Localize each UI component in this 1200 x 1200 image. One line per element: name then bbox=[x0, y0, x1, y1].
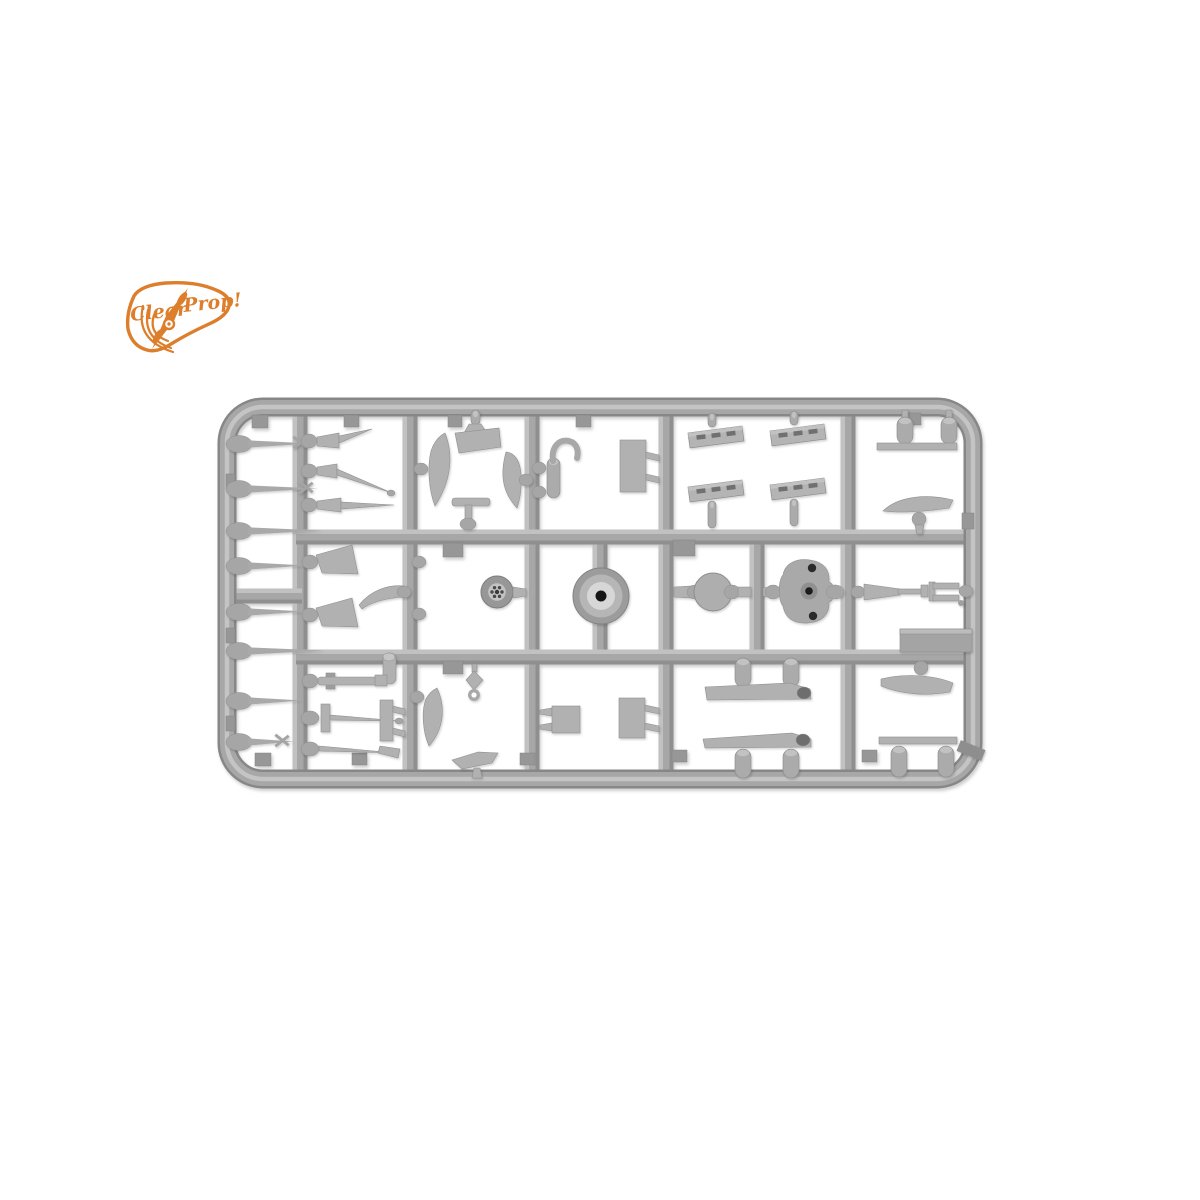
sprue-gate bbox=[397, 586, 411, 598]
gate-stub bbox=[412, 556, 426, 568]
elbow-cap bbox=[383, 653, 395, 661]
rod-tip bbox=[395, 718, 403, 724]
gear-cylinder bbox=[735, 658, 751, 687]
sprue-gate bbox=[914, 661, 928, 675]
gate-stub bbox=[412, 608, 426, 620]
square-plate bbox=[552, 706, 580, 733]
flap-stem bbox=[708, 413, 716, 427]
ejector-tab bbox=[448, 415, 462, 427]
ejector-tab bbox=[520, 753, 535, 765]
ejector-tab bbox=[352, 753, 367, 765]
engine-hole bbox=[808, 564, 816, 572]
sprue-gate bbox=[302, 555, 318, 569]
fuel-cylinder bbox=[941, 417, 957, 444]
sprue-gate bbox=[959, 585, 973, 597]
gear-cylinder bbox=[783, 658, 799, 687]
ejector-tab bbox=[443, 543, 463, 557]
sprue-gate bbox=[851, 586, 865, 598]
hook-cylinder bbox=[547, 458, 560, 498]
sprue-gate bbox=[302, 674, 318, 688]
fuel-cylinder bbox=[891, 746, 907, 777]
ejector-tab bbox=[226, 628, 235, 643]
spoked-wheel bbox=[481, 576, 513, 608]
flap-stem bbox=[708, 501, 716, 528]
fork-prong bbox=[933, 595, 959, 601]
bracket-plate bbox=[321, 704, 330, 732]
cross-bar bbox=[877, 443, 957, 450]
side-panel bbox=[619, 698, 645, 738]
sprue-gate bbox=[301, 711, 319, 725]
sprue-gate bbox=[724, 585, 740, 599]
pipe-rod bbox=[318, 677, 380, 685]
fork-prong bbox=[933, 583, 959, 589]
pulley-hole bbox=[471, 692, 476, 697]
sprue-gate bbox=[301, 464, 317, 478]
flap-stem bbox=[790, 411, 798, 425]
fuel-cylinder bbox=[897, 417, 913, 444]
sprue-gate bbox=[301, 498, 317, 512]
sprue-gate bbox=[826, 585, 844, 599]
product-photo: Clear Prop! bbox=[0, 0, 1200, 1200]
bar-cap bbox=[796, 734, 810, 746]
sprue-gate bbox=[302, 608, 318, 622]
spar-block-top bbox=[900, 629, 972, 634]
bar-cap bbox=[797, 687, 811, 699]
sprue-gate bbox=[532, 462, 546, 474]
elbow-joint bbox=[375, 675, 387, 686]
sprue-gate bbox=[414, 463, 428, 475]
ejector-tab bbox=[576, 415, 591, 427]
cone-gate bbox=[738, 587, 751, 597]
cowling-hole bbox=[596, 591, 607, 602]
cross-bar bbox=[879, 737, 957, 744]
ejector-tab bbox=[344, 415, 359, 427]
tee-stem bbox=[465, 505, 472, 520]
sprue-gate bbox=[410, 691, 424, 703]
ejector-tab bbox=[673, 540, 695, 556]
ejector-tab bbox=[443, 661, 463, 674]
mount-plate bbox=[380, 700, 393, 741]
gear-cylinder bbox=[783, 749, 799, 778]
strut-nut bbox=[921, 585, 928, 597]
sprue-gate bbox=[519, 474, 533, 486]
shovel-stem bbox=[471, 410, 480, 425]
rod-tip bbox=[387, 490, 395, 496]
sprue-gate bbox=[765, 585, 781, 599]
ejector-tab bbox=[962, 513, 974, 529]
cone-gate bbox=[513, 587, 526, 598]
sprue-gate bbox=[912, 512, 926, 526]
fuel-cylinder bbox=[938, 746, 954, 777]
pulley-stem bbox=[472, 664, 477, 672]
sprue-photo-canvas: Clear Prop! bbox=[0, 0, 1200, 1200]
sprue-gate bbox=[301, 434, 317, 448]
engine-hole bbox=[805, 587, 813, 595]
ejector-tab bbox=[252, 415, 268, 428]
ejector-tab bbox=[255, 753, 271, 766]
flap-stem bbox=[790, 499, 798, 526]
side-panel bbox=[620, 440, 646, 492]
ejector-tab bbox=[226, 716, 235, 731]
engine-hole bbox=[809, 612, 817, 620]
sprue-gate bbox=[301, 742, 319, 756]
gear-cylinder bbox=[735, 749, 751, 778]
gate-stem bbox=[472, 768, 482, 778]
sprue-gate bbox=[532, 486, 546, 498]
fork-pin bbox=[958, 600, 964, 606]
ejector-tab bbox=[862, 750, 877, 762]
tee-foot bbox=[460, 518, 476, 530]
ejector-tab bbox=[672, 750, 687, 762]
